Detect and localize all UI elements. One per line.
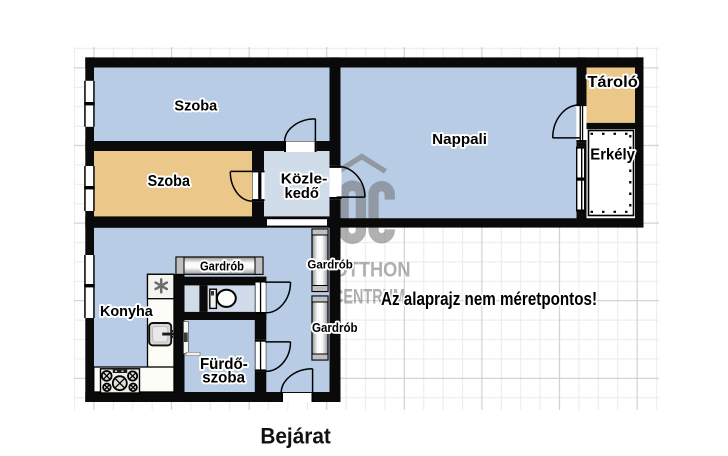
svg-text:kedő: kedő bbox=[285, 185, 319, 202]
svg-text:Bejárat: Bejárat bbox=[260, 424, 331, 449]
svg-text:Gardrób: Gardrób bbox=[200, 260, 244, 274]
svg-text:Erkély: Erkély bbox=[590, 146, 635, 163]
svg-text:Az alaprajz nem méretpontos!: Az alaprajz nem méretpontos! bbox=[381, 288, 597, 309]
svg-text:Gardrób: Gardrób bbox=[307, 257, 352, 271]
svg-text:Szoba: Szoba bbox=[148, 173, 190, 190]
svg-text:Szoba: Szoba bbox=[174, 98, 217, 115]
svg-text:Nappali: Nappali bbox=[432, 131, 487, 148]
svg-text:szoba: szoba bbox=[202, 370, 245, 387]
svg-text:Gardrób: Gardrób bbox=[312, 321, 358, 335]
svg-text:Konyha: Konyha bbox=[100, 303, 154, 320]
svg-text:Tároló: Tároló bbox=[587, 74, 638, 91]
